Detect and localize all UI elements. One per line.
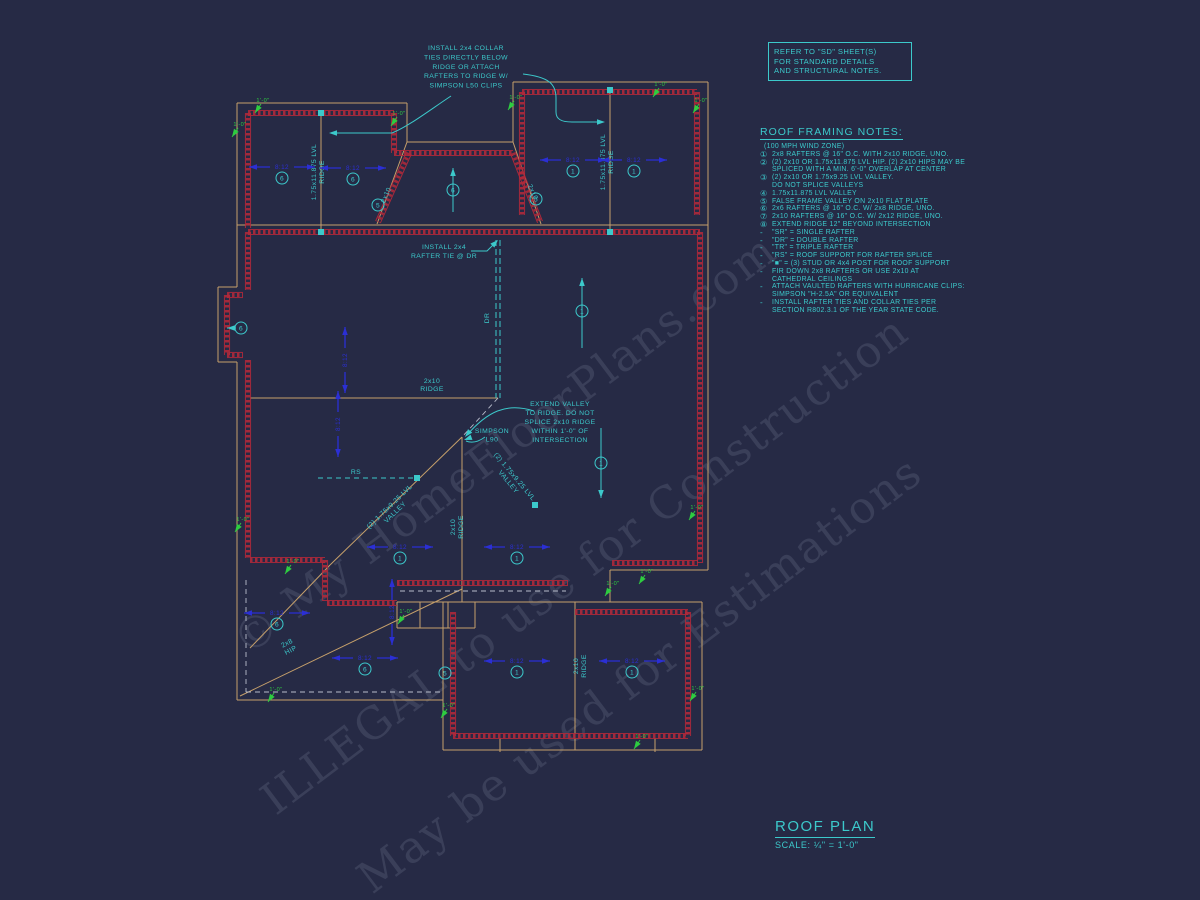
pitch-annotation: 8:12 bbox=[599, 658, 665, 665]
leader-arrowhead bbox=[302, 610, 310, 616]
notes-item-symbol: ② bbox=[760, 159, 772, 175]
leader-arrowhead bbox=[597, 119, 605, 125]
leader-arrowhead bbox=[579, 278, 585, 286]
refer-note-line: REFER TO "SD" SHEET(S) bbox=[774, 47, 906, 57]
pitch-value: 8:12 bbox=[346, 165, 360, 172]
plan-note-line: WITHIN 1'-0" OF bbox=[532, 428, 589, 435]
member-label: 2x8HIP bbox=[280, 638, 298, 657]
keynote-number: 1 bbox=[571, 168, 575, 175]
member-label: 2x10RIDGE bbox=[450, 515, 465, 539]
leader-arrowhead bbox=[342, 327, 348, 335]
keynote-number: 5 bbox=[534, 196, 538, 203]
plan-note-line: RAFTERS TO RIDGE W/ bbox=[424, 73, 508, 80]
leader-arrowhead bbox=[378, 165, 386, 171]
notes-item-line: (2) 2x10 OR 1.75x9.25 LVL VALLEY. bbox=[772, 174, 894, 182]
pitch-value: 8:12 bbox=[393, 544, 407, 551]
wall-hatch bbox=[378, 153, 409, 222]
leader-arrowhead bbox=[542, 658, 550, 664]
member-label: 2x10RIDGE bbox=[420, 378, 444, 393]
overhang-dim: 1'-0" bbox=[392, 111, 405, 117]
roof-framing-notes: ROOF FRAMING NOTES:(100 MPH WIND ZONE)①2… bbox=[760, 122, 995, 315]
pitch-annotation: 8:12 bbox=[342, 327, 349, 393]
refer-note-line: FOR STANDARD DETAILS bbox=[774, 57, 906, 67]
overhang-dim: 1'-0" bbox=[606, 581, 619, 587]
keynote-number: 6 bbox=[239, 325, 243, 332]
notes-item: ④1.75x11.875 LVL VALLEY bbox=[760, 190, 995, 198]
overhang-dim: 1'-0" bbox=[442, 703, 455, 709]
roof-plan-drawing: INSTALL 2x4 COLLARTIES DIRECTLY BELOWRID… bbox=[0, 0, 1200, 900]
pitch-annotation: 8:12 bbox=[244, 610, 310, 617]
overhang-dim: 1'-0" bbox=[691, 686, 704, 692]
leader-arrowhead bbox=[266, 694, 275, 704]
overhang-dim: 1'-0" bbox=[694, 98, 707, 104]
keynote-number: 1 bbox=[398, 555, 402, 562]
pitch-value: 8:12 bbox=[358, 655, 372, 662]
leader-arrowhead bbox=[542, 544, 550, 550]
plan-note-line: SIMPSON bbox=[475, 428, 509, 435]
plan-note-line: INSTALL 2x4 COLLAR bbox=[428, 45, 504, 52]
notes-item-line: "RS" = ROOF SUPPORT FOR RAFTER SPLICE bbox=[772, 252, 933, 260]
pitch-annotation: 8:12 bbox=[335, 391, 342, 457]
notes-item-line: INSTALL RAFTER TIES AND COLLAR TIES PER bbox=[772, 299, 939, 307]
member-label: (2) 1.75x9.25 LVLVALLEY bbox=[486, 452, 536, 508]
keynote-number: 1 bbox=[632, 168, 636, 175]
leader-arrowhead bbox=[390, 655, 398, 661]
notes-item-line: SPLICED WITH A MIN. 6'-0" OVERLAP AT CEN… bbox=[772, 166, 965, 174]
roof-plan-sheet: © My HomeFloorPlans.com ILLEGAL to use f… bbox=[0, 0, 1200, 900]
pitch-value: 8:12 bbox=[275, 164, 289, 171]
notes-item-symbol: - bbox=[760, 268, 772, 284]
notes-item-line: "DR" = DOUBLE RAFTER bbox=[772, 237, 859, 245]
notes-item: -FIR DOWN 2x8 RAFTERS OR USE 2x10 ATCATH… bbox=[760, 268, 995, 284]
notes-item-symbol: ③ bbox=[760, 174, 772, 190]
plan-note-line: TIES DIRECTLY BELOW bbox=[424, 54, 508, 61]
overhang-dim: 1'-0" bbox=[236, 517, 249, 523]
notes-item: -"RS" = ROOF SUPPORT FOR RAFTER SPLICE bbox=[760, 252, 995, 260]
keynote-number: 5 bbox=[376, 202, 380, 209]
post-marker bbox=[414, 475, 420, 481]
keynote-number: 6 bbox=[351, 176, 355, 183]
plan-note-line: SIMPSON L50 CLIPS bbox=[430, 83, 503, 90]
notes-item-line: FALSE FRAME VALLEY ON 2x10 FLAT PLATE bbox=[772, 198, 928, 206]
leader-arrowhead bbox=[335, 449, 341, 457]
leader-arrowhead bbox=[389, 579, 395, 587]
leader-arrowhead bbox=[283, 566, 292, 576]
notes-item-line: SECTION R802.3.1 OF THE YEAR STATE CODE. bbox=[772, 307, 939, 315]
notes-item-line: "TR" = TRIPLE RAFTER bbox=[772, 244, 853, 252]
notes-item-line: DO NOT SPLICE VALLEYS bbox=[772, 182, 894, 190]
overhang-dim: 1'-0" bbox=[640, 569, 653, 575]
overhang-dim: 1'-0" bbox=[690, 505, 703, 511]
notes-item-line: 1.75x11.875 LVL VALLEY bbox=[772, 190, 857, 198]
pitch-annotation: 8:12 bbox=[484, 544, 550, 551]
pitch-value: 8:12 bbox=[389, 605, 396, 619]
pitch-annotation: 8:12 bbox=[320, 165, 386, 172]
member-label: DR bbox=[484, 313, 491, 324]
plan-note-line: RIDGE OR ATTACH bbox=[432, 64, 499, 71]
keynote-number: 1 bbox=[599, 460, 603, 467]
plan-note-line: INTERSECTION bbox=[532, 437, 587, 444]
pitch-annotation: 8:12 bbox=[484, 658, 550, 665]
keynote-number: 6 bbox=[451, 187, 455, 194]
notes-item-line: "■" = (3) STUD OR 4x4 POST FOR ROOF SUPP… bbox=[772, 260, 950, 268]
leader-arrowhead bbox=[450, 168, 456, 176]
notes-item: -"DR" = DOUBLE RAFTER bbox=[760, 237, 995, 245]
keynote-number: 6 bbox=[275, 621, 279, 628]
keynote-number: 6 bbox=[363, 666, 367, 673]
notes-item: -"TR" = TRIPLE RAFTER bbox=[760, 244, 995, 252]
leader-arrowhead bbox=[484, 544, 492, 550]
pitch-annotation: 8:12 bbox=[389, 579, 396, 645]
overhang-dim: 1'-0" bbox=[654, 82, 667, 88]
notes-item-line: CATHEDRAL CEILINGS bbox=[772, 276, 919, 284]
leader-arrowhead bbox=[335, 391, 341, 399]
leader-arrowhead bbox=[637, 576, 646, 586]
notes-item-symbol: - bbox=[760, 283, 772, 299]
keynote-number: 1 bbox=[515, 555, 519, 562]
leader-line bbox=[523, 74, 603, 122]
post-marker bbox=[532, 502, 538, 508]
member-label: (2) 1.75x9.25 LVLVALLEY bbox=[366, 483, 420, 536]
notes-subtitle: (100 MPH WIND ZONE) bbox=[764, 143, 995, 151]
leader-arrowhead bbox=[329, 130, 337, 136]
notes-item-line: "SR" = SINGLE RAFTER bbox=[772, 229, 855, 237]
notes-item: -"■" = (3) STUD OR 4x4 POST FOR ROOF SUP… bbox=[760, 260, 995, 268]
leader-arrowhead bbox=[389, 637, 395, 645]
notes-item-symbol: - bbox=[760, 299, 772, 315]
notes-item: -INSTALL RAFTER TIES AND COLLAR TIES PER… bbox=[760, 299, 995, 315]
keynote-number: 1 bbox=[580, 308, 584, 315]
keynote-number: 5 bbox=[443, 670, 447, 677]
post-marker bbox=[607, 87, 613, 93]
notes-item: ②(2) 2x10 OR 1.75x11.875 LVL HIP. (2) 2x… bbox=[760, 159, 995, 175]
plan-note-line: L90 bbox=[486, 437, 499, 444]
pitch-value: 8:12 bbox=[342, 353, 349, 367]
notes-title: ROOF FRAMING NOTES: bbox=[760, 126, 903, 140]
post-marker bbox=[607, 229, 613, 235]
sheet-scale: SCALE: ¼" = 1'-0" bbox=[775, 840, 875, 850]
notes-item-line: EXTEND RIDGE 12" BEYOND INTERSECTION bbox=[772, 221, 931, 229]
pitch-annotation: 8:12 bbox=[249, 164, 315, 171]
pitch-annotation: 8:12 bbox=[367, 544, 433, 551]
keynote-number: 1 bbox=[515, 669, 519, 676]
pitch-value: 8:12 bbox=[510, 544, 524, 551]
plan-note-line: SPLICE 2x10 RIDGE bbox=[524, 419, 595, 426]
refer-note-box: REFER TO "SD" SHEET(S) FOR STANDARD DETA… bbox=[768, 42, 912, 81]
notes-item-line: 2x8 RAFTERS @ 16" O.C. WITH 2x10 RIDGE, … bbox=[772, 151, 949, 159]
keynote-number: 6 bbox=[280, 175, 284, 182]
plan-note-line: RAFTER TIE @ DR bbox=[411, 253, 477, 260]
notes-item-line: FIR DOWN 2x8 RAFTERS OR USE 2x10 AT bbox=[772, 268, 919, 276]
notes-item: -ATTACH VAULTED RAFTERS WITH HURRICANE C… bbox=[760, 283, 995, 299]
pitch-value: 8:12 bbox=[510, 658, 524, 665]
refer-note-line: AND STRUCTURAL NOTES. bbox=[774, 66, 906, 76]
post-marker bbox=[318, 110, 324, 116]
pitch-annotation: 8:12 bbox=[332, 655, 398, 662]
pitch-value: 8:12 bbox=[270, 610, 284, 617]
leader-arrowhead bbox=[540, 157, 548, 163]
leader-arrowhead bbox=[425, 544, 433, 550]
overhang-dim: 1'-0" bbox=[269, 687, 282, 693]
plan-note-line: TO RIDGE. DO NOT bbox=[525, 410, 594, 417]
post-marker bbox=[318, 229, 324, 235]
member-label: 1.75x11.875 LVLRIDGE bbox=[311, 144, 326, 200]
leader-arrowhead bbox=[599, 658, 607, 664]
leader-arrowhead bbox=[632, 741, 641, 751]
leader-arrowhead bbox=[659, 157, 667, 163]
leader-arrowhead bbox=[598, 490, 604, 498]
notes-item: ⑥2x6 RAFTERS @ 16" O.C. W/ 2x8 RIDGE, UN… bbox=[760, 205, 995, 213]
title-block: ROOF PLAN SCALE: ¼" = 1'-0" bbox=[775, 818, 875, 850]
sheet-title: ROOF PLAN bbox=[775, 818, 875, 838]
notes-item: ⑧EXTEND RIDGE 12" BEYOND INTERSECTION bbox=[760, 221, 995, 229]
plan-note-line: EXTEND VALLEY bbox=[530, 401, 590, 408]
notes-item-line: 2x6 RAFTERS @ 16" O.C. W/ 2x8 RIDGE, UNO… bbox=[772, 205, 935, 213]
plan-note-line: INSTALL 2x4 bbox=[422, 244, 466, 251]
notes-item-line: SIMPSON "H-2.5A" OR EQUIVALENT bbox=[772, 291, 965, 299]
overhang-dim: 1'-0" bbox=[399, 609, 412, 615]
pitch-value: 8:12 bbox=[625, 658, 639, 665]
leader-arrowhead bbox=[342, 385, 348, 393]
leader-arrowhead bbox=[244, 610, 252, 616]
overhang-dim: 1'-0" bbox=[286, 559, 299, 565]
leader-arrowhead bbox=[332, 655, 340, 661]
pitch-value: 8:12 bbox=[627, 157, 641, 164]
pitch-annotation: 8:12 bbox=[540, 157, 606, 164]
leader-arrowhead bbox=[687, 512, 696, 522]
overhang-dim: 1'-0" bbox=[509, 95, 522, 101]
overhang-dim: 1'-0" bbox=[233, 122, 246, 128]
leader-arrowhead bbox=[367, 544, 375, 550]
notes-item: ⑦2x10 RAFTERS @ 16" O.C. W/ 2x12 RIDGE, … bbox=[760, 213, 995, 221]
overhang-dim: 1'-0" bbox=[635, 734, 648, 740]
notes-item: -"SR" = SINGLE RAFTER bbox=[760, 229, 995, 237]
overhang-dim: 1'-0" bbox=[256, 98, 269, 104]
keynote-number: 1 bbox=[630, 669, 634, 676]
notes-item-line: (2) 2x10 OR 1.75x11.875 LVL HIP. (2) 2x1… bbox=[772, 159, 965, 167]
notes-item: ①2x8 RAFTERS @ 16" O.C. WITH 2x10 RIDGE,… bbox=[760, 151, 995, 159]
leader-arrowhead bbox=[657, 658, 665, 664]
notes-item-line: ATTACH VAULTED RAFTERS WITH HURRICANE CL… bbox=[772, 283, 965, 291]
notes-item-line: 2x10 RAFTERS @ 16" O.C. W/ 2x12 RIDGE, U… bbox=[772, 213, 943, 221]
notes-item: ③(2) 2x10 OR 1.75x9.25 LVL VALLEY.DO NOT… bbox=[760, 174, 995, 190]
pitch-value: 8:12 bbox=[566, 157, 580, 164]
leader-arrowhead bbox=[484, 658, 492, 664]
pitch-value: 8:12 bbox=[335, 417, 342, 431]
notes-item: ⑤FALSE FRAME VALLEY ON 2x10 FLAT PLATE bbox=[760, 198, 995, 206]
member-label: RS bbox=[351, 469, 361, 476]
